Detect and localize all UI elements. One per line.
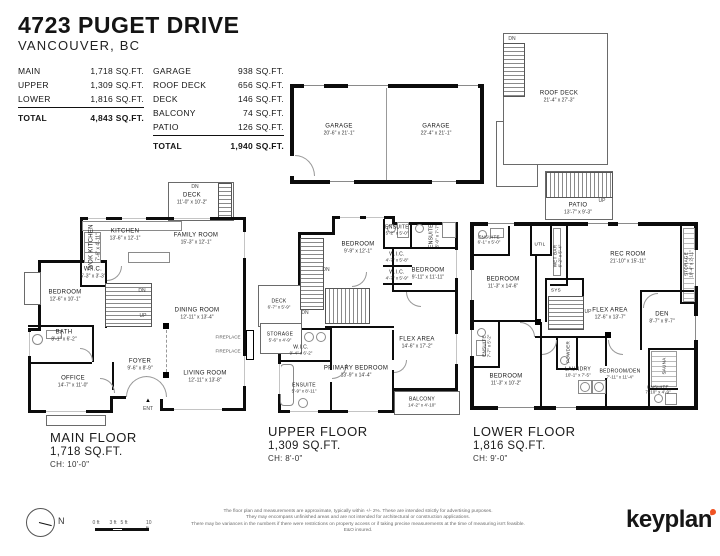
sink [316,332,326,342]
area-value: 656 SQ.FT. [238,80,284,90]
scale-segment [112,528,123,531]
window [348,84,388,88]
wall [535,336,606,338]
wall [550,284,566,286]
area-table-left: MAIN1,718 SQ.FT. UPPER1,309 SQ.FT. LOWER… [18,64,144,124]
door-gap [290,156,294,176]
scale-tick: 3 ft [110,520,117,526]
window [694,316,698,340]
main-floor-plan: DN DECK 11'-0" x 10'-2" DN UP FIREPLACE … [22,180,254,440]
fireplace-label: FIREPLACE [215,335,240,340]
room-label-storage: STORAGE 10'-4" x 2'-11" [684,250,695,277]
window [243,356,246,386]
patio-plan: UP PATIO 13'-7" x 9'-3" [545,171,613,220]
window [243,232,246,258]
wall [648,348,650,406]
room-label-family-room: FAMILY ROOM 15'-3" x 12'-1" [174,232,218,245]
entry-door-arc [126,376,147,397]
roof-deck-plan: DN ROOF DECK 21'-4" x 27'-3" [495,33,613,191]
wall [545,278,584,280]
area-row: UPPER1,309 SQ.FT. [18,78,144,92]
wall [474,254,510,256]
wall [278,360,330,362]
area-total-label: TOTAL [153,141,182,151]
room-label-office: OFFICE 14'-7" x 11'-0" [58,375,88,388]
room-label-patio: PATIO 13'-7" x 9'-3" [564,202,592,215]
wall [325,326,394,328]
wall [392,330,394,360]
room-label-deck: DECK 6'-7" x 5'-9" [268,298,291,309]
room-label-bedroom: BEDROOM 9'-9" x 12'-1" [341,241,374,254]
room-label-flex-area: FLEX AREA 12'-6" x 13'-7" [592,307,627,320]
wall [530,226,532,254]
garage-door [330,180,354,184]
stair-direction: UP [140,313,147,319]
stairs [300,238,324,310]
area-label: GARAGE [153,66,191,76]
window [694,250,698,286]
lower-floor-plan: UP ENSUITE 6'-1" x 5'-0" UTIL WET BAR [468,220,702,416]
wall [680,302,696,304]
wall [566,226,568,286]
wall [330,382,332,412]
wall [383,265,412,267]
room-label-garage-right: GARAGE 22'-4" x 21'-1" [421,123,452,136]
wall [474,320,537,322]
door-arc [394,360,407,373]
stair-direction: UP [585,309,592,315]
page-title: 4723 PUGET DRIVE [18,12,239,39]
window [304,84,324,88]
wall [290,84,484,184]
wall [640,290,694,292]
room-label-bedroom: BEDROOM 11'-3" x 14'-6" [486,276,519,289]
window [470,270,474,300]
area-row: GARAGE938 SQ.FT. [153,64,284,78]
room-label-bedroom: BEDROOM 9'-11" x 11'-11" [411,267,444,280]
window [340,216,360,219]
stairs [548,296,584,330]
disclaimer: The floor plan and measurements are appr… [188,509,528,535]
wall [576,336,578,368]
window [88,217,106,220]
room-label-sauna: SAUNA [661,357,666,374]
window [28,332,31,356]
room-label-den: DEN 8'-7" x 9'-7" [649,311,674,324]
wall [301,328,332,330]
area-label: DECK [153,94,178,104]
room-label-bedroom: BEDROOM 11'-3" x 10'-2" [489,373,522,386]
scale-segment [123,528,149,531]
wall [508,226,510,254]
room-label-ensuite: ENSUITE 6'-1" x 5'-0" [478,235,501,246]
window [455,250,458,278]
wall [80,285,107,287]
area-row: DECK146 SQ.FT. [153,92,284,106]
stair-direction: DN [301,310,308,316]
window [618,222,638,226]
window [488,222,514,226]
room-label-ensuite: ENSUITE 7'-10" x 4'-9" [645,385,670,396]
area-row: PATIO126 SQ.FT. [153,120,284,134]
window [174,408,222,411]
wall [474,366,500,368]
stair-direction: DN [508,36,515,42]
main-floor-label: MAIN FLOOR 1,718 SQ.FT. CH: 10'-0" [50,430,137,469]
window [366,216,384,219]
area-total-value: 4,843 SQ.FT. [90,113,144,123]
kitchen-island [128,252,170,263]
garage-door [432,180,456,184]
sink [304,332,314,342]
window [122,217,146,220]
lower-floor-label: LOWER FLOOR 1,816 SQ.FT. CH: 9'-0" [473,424,576,463]
wall [28,362,92,364]
window [278,364,281,394]
porch-step [46,415,106,426]
floorplan-page: { "header": { "title": "4723 PUGET DRIVE… [0,0,720,556]
window [556,406,576,410]
column [163,372,169,378]
room-label-dining-room: DINING ROOM 12'-11" x 13'-4" [175,307,220,320]
window [455,334,458,364]
wall [640,290,642,350]
area-value: 126 SQ.FT. [238,122,284,132]
area-total-row: TOTAL1,940 SQ.FT. [153,135,284,152]
area-value: 74 SQ.FT. [243,108,284,118]
room-label-wic: W.I.C. 5'-3" x 3'-3" [80,266,105,279]
area-row: ROOF DECK656 SQ.FT. [153,78,284,92]
room-label-living-room: LIVING ROOM 12'-11" x 13'-8" [183,370,226,383]
entry-door-arc [146,376,167,397]
shower [442,222,456,238]
scale-segment [95,528,112,531]
room-label-ensuite: ENSUITE 5'-0" x 7'-7" [428,224,439,248]
toilet [298,398,308,408]
area-value: 146 SQ.FT. [238,94,284,104]
stairs [325,288,370,324]
room-label-balcony: BALCONY 14'-2" x 4'-10" [408,396,436,407]
compass-icon [26,508,55,537]
wall [392,290,458,292]
dryer-door [594,382,604,392]
wall [648,348,694,350]
toilet [415,224,424,233]
wall [530,254,552,256]
room-label-wic: W.I.C. 9'-4" x 6'-2" [290,344,313,355]
area-value: 1,309 SQ.FT. [90,80,144,90]
column [605,332,611,338]
area-label: LOWER [18,94,51,104]
room-label-powder: POWDER [565,341,570,363]
fireplace [246,330,254,360]
room-label-garage-left: GARAGE 20'-6" x 21'-1" [324,123,355,136]
wall [28,325,92,327]
wall [545,278,547,322]
stair-direction: UP [599,198,606,204]
room-label-laundry: LAUNDRY 10'-1" x 7'-5" [565,366,591,377]
area-row: LOWER1,816 SQ.FT. [18,92,144,106]
door-arc [107,266,122,281]
door-gap [588,222,608,226]
window [498,406,534,410]
room-label-wet-bar: WET BAR 6'-2" x 5'-4" [553,245,564,268]
compass-north-label: N [58,516,65,526]
room-label-ensuite: ENSUITE 5'-9" x 8'-11" [292,382,317,393]
room-label-ensuite: ENSUITE 7'-7" x 5'-2" [482,335,493,358]
washer-door [580,382,590,392]
wall [383,283,412,285]
area-value: 1,718 SQ.FT. [90,66,144,76]
room-label-sys: SYS [551,287,561,292]
sliding-door [174,217,210,220]
stair-direction: DN [138,288,145,294]
room-label-flex-area: FLEX AREA 14'-6" x 17'-2" [399,336,434,349]
area-label: ROOF DECK [153,80,206,90]
scale-bar: 0 ft 3 ft 5 ft 10 ft [95,520,155,534]
window [458,84,478,88]
fireplace-label: FIREPLACE [215,349,240,354]
room-label-util: UTIL [535,241,546,246]
wall [298,232,335,235]
column [163,323,169,329]
page-subtitle: VANCOUVER, BC [18,38,140,53]
area-row: BALCONY74 SQ.FT. [153,106,284,120]
room-label-wic: W.I.C. 4'-7" x 5'-9" [386,269,409,280]
upper-floor-label: UPPER FLOOR 1,309 SQ.FT. CH: 8'-0" [268,424,368,463]
area-label: UPPER [18,80,49,90]
wall [386,88,387,180]
area-total-value: 1,940 SQ.FT. [230,141,284,151]
area-total-row: TOTAL4,843 SQ.FT. [18,107,144,124]
area-total-label: TOTAL [18,113,47,123]
garage-plan: GARAGE 20'-6" x 21'-1" GARAGE 22'-4" x 2… [290,84,484,184]
wall [535,254,537,320]
room-label-wic: W.I.C. 4'-7" x 5'-8" [386,251,409,262]
room-label-ensuite: ENSUITE 5'-2" x 5'-0" [385,224,409,235]
room-label-primary-bedroom: PRIMARY BEDROOM 13'-9" x 14'-4" [324,365,388,378]
wall [605,336,607,366]
keyplan-logo-dot-icon [710,509,717,516]
stair-direction: DN [191,184,198,190]
room-label-deck: DECK 11'-0" x 10'-2" [177,192,207,205]
keyplan-logo: keyplan [626,506,712,534]
room-label-kitchen: KITCHEN 13'-6" x 12'-1" [110,228,141,241]
area-row: MAIN1,718 SQ.FT. [18,64,144,78]
area-table-right: GARAGE938 SQ.FT. ROOF DECK656 SQ.FT. DEC… [153,64,284,152]
column [535,319,541,325]
room-label-bedroom: BEDROOM 12'-6" x 10'-1" [48,289,81,302]
wall [540,322,542,406]
room-label-foyer: FOYER 9'-6" x 8'-9" [127,358,152,371]
stair-direction: DN [322,267,329,273]
room-label-storage: STORAGE 5'-6" x 4'-9" [267,331,293,342]
compass-needle [39,522,52,526]
wall [498,322,500,368]
stairs [218,183,232,219]
bay-window [24,272,41,305]
stairs [503,43,525,97]
window [46,410,86,413]
scale-tick: 0 ft [93,520,100,526]
room-label-bath: BATH 8'-1" x 6'-2" [51,329,76,342]
upper-floor-plan: DN DN BEDROOM 9'-9" x 12'-1" ENSUITE 5'-… [256,214,464,419]
room-label-roof-deck: ROOF DECK 21'-4" x 27'-3" [540,90,578,103]
scale-tick: 5 ft [121,520,128,526]
area-label: BALCONY [153,108,196,118]
wall [410,222,412,249]
wall [383,247,458,249]
entry-marker-icon: ▲ [145,398,151,404]
area-label: MAIN [18,66,40,76]
entry-label: ENT [143,406,153,412]
area-value: 1,816 SQ.FT. [90,94,144,104]
disclaimer-line: There may be variances in the numbers if… [188,522,528,535]
room-label-bedroom-den: BEDROOM/DEN 7'-11" x 11'-4" [599,368,640,379]
area-label: PATIO [153,122,179,132]
room-label-rec-room: REC ROOM 21'-10" x 15'-11" [610,251,646,264]
room-label-wok-kitchen: WOK KITCHEN 7'-6" x 4'-11" [88,224,101,270]
window [348,410,378,413]
door-arc [352,272,367,287]
window [290,410,318,413]
door-arc [406,292,421,307]
stairs [546,172,613,198]
keyplan-logo-text: keyplan [626,506,712,533]
room-divider [166,330,167,372]
toilet [32,334,43,345]
area-value: 938 SQ.FT. [238,66,284,76]
window [470,330,474,356]
